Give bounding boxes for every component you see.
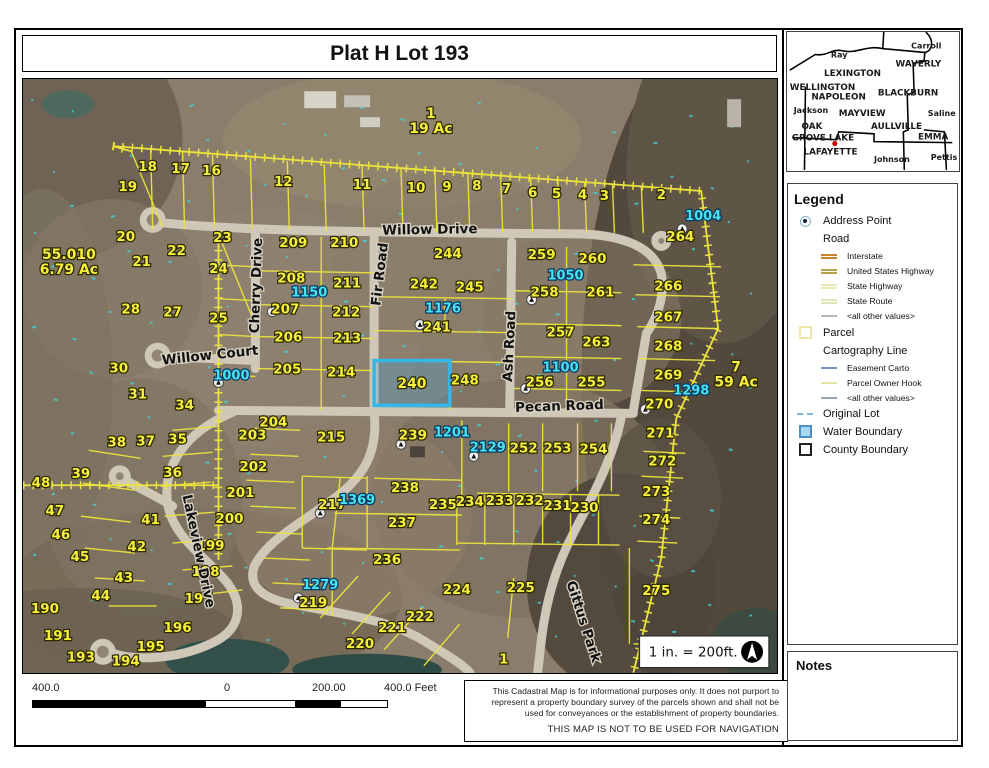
map-scale-text: 1 in. = 200ft.	[649, 646, 738, 661]
parcel-label-48: 48	[32, 476, 51, 491]
parcel-label-209: 209	[279, 236, 307, 251]
parcel-label-31: 31	[128, 387, 147, 402]
locator-place-label: LAFAYETTE	[804, 147, 858, 157]
map-annotation-speck	[283, 123, 285, 125]
parcel-label-22: 22	[167, 244, 186, 259]
legend-item: United States Highway	[794, 266, 951, 276]
map-annotation-speck	[247, 150, 250, 152]
parcel-label-257: 257	[547, 326, 575, 341]
legend-item-label: Cartography Line	[823, 345, 907, 357]
map-annotation-speck	[691, 570, 695, 572]
disclaimer-line: This Cadastral Map is for informational …	[473, 686, 779, 697]
parcel-label-213: 213	[333, 332, 361, 347]
legend-item-label: Water Boundary	[823, 426, 902, 438]
parcel-label-19: 19	[118, 180, 137, 195]
disclaimer-line: represent a property boundary survey of …	[473, 697, 779, 708]
locator-place-label: OAK	[802, 122, 824, 132]
parcel-label-225: 225	[507, 581, 535, 596]
parcel-label-206: 206	[274, 331, 302, 346]
building	[344, 95, 370, 107]
legend-title: Legend	[794, 191, 951, 207]
locator-place-label: NAPOLEON	[811, 93, 866, 103]
parcel-label-200: 200	[215, 512, 243, 527]
parcel-label-10: 10	[407, 181, 426, 196]
parcel-label-235: 235	[429, 498, 457, 513]
map-annotation-speck	[593, 192, 597, 194]
parcel-label-190: 190	[31, 602, 59, 617]
address-point-swatch	[800, 216, 811, 227]
parcel-label-267: 267	[654, 311, 682, 326]
scale-bar-segment	[206, 701, 295, 707]
legend-item-label: <all other values>	[847, 311, 915, 321]
legend-item-label: State Highway	[847, 281, 902, 291]
legend-item-label: Parcel Owner Hook	[847, 378, 922, 388]
map-annotation-speck	[52, 493, 55, 495]
parcel-label-255: 255	[577, 375, 605, 390]
map-annotation-speck	[71, 432, 74, 434]
map-annotation-speck	[477, 424, 481, 426]
map-annotation-speck	[168, 583, 172, 585]
parcel-label-268: 268	[654, 340, 682, 355]
parcel-label-248: 248	[451, 373, 479, 388]
scale-bar-labels: 400.00200.00400.0 Feet	[32, 682, 432, 697]
locator-place-label: WAVERLY	[896, 59, 942, 69]
parcel-label-196: 196	[164, 621, 192, 636]
plat-map-page: Plat H Lot 193 1817161211109876543219202…	[0, 0, 989, 768]
parcel-label-24: 24	[209, 262, 228, 277]
locator-place-label: EMMA	[918, 133, 949, 143]
parcel-label-203: 203	[238, 428, 266, 443]
road-label: Willow Drive	[382, 222, 478, 239]
parcel-label-253: 253	[544, 441, 572, 456]
parcel-label-4: 4	[578, 188, 587, 203]
map-annotation-speck	[708, 604, 711, 606]
title-bar: Plat H Lot 193	[22, 35, 777, 72]
plat-map[interactable]: 1817161211109876543219202321222428272530…	[23, 79, 777, 673]
parcel-label-252: 252	[510, 441, 538, 456]
acreage-label: 19 Ac	[409, 121, 452, 137]
scale-bar-graphic	[32, 700, 388, 708]
scale-bar-label: 400.0 Feet	[384, 682, 437, 694]
building	[410, 446, 425, 457]
parcel-label-43: 43	[114, 571, 133, 586]
building	[727, 99, 741, 127]
parcel-label-35: 35	[168, 432, 187, 447]
address-label-1201: 1201	[434, 425, 470, 440]
bottom-row: 400.00200.00400.0 Feet This Cadastral Ma…	[22, 680, 777, 744]
map-annotation-speck	[266, 639, 269, 641]
parcel-label-28: 28	[121, 303, 140, 318]
cul-de-sac-island	[116, 472, 124, 480]
original-lot-swatch	[797, 413, 813, 415]
parcel-label-41: 41	[141, 513, 160, 528]
disclaimer-box: This Cadastral Map is for informational …	[464, 680, 788, 742]
scale-bar-label: 200.00	[312, 682, 346, 694]
locator-place-label: WELLINGTON	[790, 83, 855, 93]
map-annotation-speck	[690, 343, 692, 345]
state-route-swatch	[821, 299, 837, 304]
parcel-label-270: 270	[645, 397, 673, 412]
map-annotation-speck	[361, 334, 364, 336]
legend-item: State Route	[794, 296, 951, 306]
parcel-label-224: 224	[443, 583, 471, 598]
parcel-label-259: 259	[528, 248, 556, 263]
scale-bar-label: 400.0	[32, 682, 60, 694]
parcel-label-208: 208	[277, 272, 305, 287]
parcel-label-231: 231	[544, 499, 572, 514]
locator-place-label: Johnson	[873, 155, 910, 164]
map-annotation-speck	[497, 591, 500, 593]
disclaimer-line: used for conveyances or the establishmen…	[473, 708, 779, 719]
cul-de-sac-island	[658, 238, 664, 244]
map-annotation-speck	[362, 562, 364, 564]
legend-item-label: Easement Carto	[847, 363, 909, 373]
acreage-label: 55.010	[42, 247, 96, 263]
page-title: Plat H Lot 193	[330, 42, 469, 66]
parcel-label-219: 219	[299, 596, 327, 611]
building	[360, 117, 380, 127]
map-annotation-speck	[72, 110, 74, 112]
parcel-label-36: 36	[163, 466, 182, 481]
parcel-label-191: 191	[44, 629, 72, 644]
parcel-label-202: 202	[239, 460, 267, 475]
locator-map: RayCarrollWAVERLYLEXINGTONWELLINGTONNAPO…	[786, 31, 960, 172]
parcel-label-214: 214	[327, 365, 355, 380]
parcel-label-242: 242	[410, 278, 438, 293]
locator-place-label: LEXINGTON	[824, 69, 881, 79]
acreage-label: 1	[426, 106, 436, 122]
map-annotation-speck	[131, 382, 134, 384]
parcel-swatch	[799, 326, 812, 339]
legend-item: Cartography Line	[794, 345, 951, 357]
parcel-label-272: 272	[648, 454, 676, 469]
interstate-swatch	[821, 254, 837, 259]
map-annotation-speck	[245, 245, 247, 247]
address-label-1298: 1298	[673, 383, 709, 398]
state-highway-swatch	[821, 284, 837, 289]
parcel-label-21: 21	[132, 255, 151, 270]
parcel-label-238: 238	[391, 481, 419, 496]
map-annotation-speck	[441, 451, 443, 453]
parcel-label-233: 233	[486, 494, 514, 509]
parcel-label-211: 211	[333, 277, 361, 292]
address-label-1176: 1176	[425, 302, 461, 317]
scale-bar-segment	[295, 701, 341, 707]
parcel-label-244: 244	[434, 247, 462, 262]
parcel-label-3: 3	[600, 189, 609, 204]
parcel-label-258: 258	[531, 286, 559, 301]
parcel-label-230: 230	[570, 501, 598, 516]
legend-item: <all other values>	[794, 311, 951, 321]
map-annotation-speck	[343, 623, 345, 625]
cul-de-sac-island	[97, 646, 109, 658]
parcel-label-273: 273	[642, 485, 670, 500]
legend-panel: Legend Address PointRoadInterstateUnited…	[787, 183, 958, 645]
scale-bar-segment	[33, 701, 206, 707]
parcel-label-241: 241	[423, 321, 451, 336]
legend-item: Parcel	[794, 326, 951, 339]
parcel-label-12: 12	[274, 175, 293, 190]
address-label-1000: 1000	[213, 368, 249, 383]
map-annotation-speck	[460, 390, 462, 392]
legend-item: Road	[794, 233, 951, 245]
legend-item: Parcel Owner Hook	[794, 378, 951, 388]
parcel-label-221: 221	[378, 621, 406, 636]
parcel-label-215: 215	[317, 430, 345, 445]
legend-item: Easement Carto	[794, 363, 951, 373]
parcel-label-194: 194	[112, 655, 140, 670]
legend-item-label: Interstate	[847, 251, 883, 261]
legend-item-label: Parcel	[823, 327, 854, 339]
parcel-label-275: 275	[642, 584, 670, 599]
parcel-label-5: 5	[552, 187, 561, 202]
parcel-label-193: 193	[67, 651, 95, 666]
parcel-label-7: 7	[502, 182, 511, 197]
map-annotation-speck	[497, 269, 499, 271]
parcel-label-17: 17	[171, 162, 190, 177]
parcel-label-205: 205	[273, 363, 301, 378]
map-annotation-speck	[34, 232, 36, 234]
map-annotation-speck	[324, 134, 326, 136]
map-annotation-speck	[399, 213, 402, 215]
address-label-1004: 1004	[685, 209, 721, 224]
locator-place-label: AULLVILLE	[871, 122, 922, 132]
disclaimer-text: This Cadastral Map is for informational …	[473, 686, 779, 719]
legend-item-label: <all other values>	[847, 393, 915, 403]
map-area: 1817161211109876543219202321222428272530…	[22, 78, 778, 674]
parcel-label-266: 266	[654, 280, 682, 295]
parcel-label-30: 30	[109, 362, 128, 377]
map-annotation-speck	[381, 501, 383, 503]
parcel-label-6: 6	[528, 186, 537, 201]
parcel-label-210: 210	[330, 236, 358, 251]
map-annotation-speck	[574, 575, 576, 577]
locator-place-label: Pettis	[931, 153, 958, 162]
parcel-label-8: 8	[472, 179, 481, 194]
parcel-label-38: 38	[107, 435, 126, 450]
parcel-label-263: 263	[582, 336, 610, 351]
parcel-label-11: 11	[353, 178, 372, 193]
map-annotation-speck	[150, 549, 152, 551]
locator-place-label: Carroll	[911, 42, 941, 51]
county-locator-map: RayCarrollWAVERLYLEXINGTONWELLINGTONNAPO…	[787, 32, 959, 171]
parcel-label-9: 9	[442, 180, 451, 195]
parcel-label-236: 236	[373, 553, 401, 568]
parcel-label-20: 20	[116, 230, 135, 245]
map-annotation-speck	[557, 541, 560, 543]
acreage-label: 59 Ac	[714, 374, 757, 390]
parcel-label-34: 34	[175, 398, 194, 413]
parcel-label-23: 23	[213, 231, 232, 246]
locator-place-label: Jackson	[793, 106, 829, 115]
map-annotation-speck	[750, 292, 752, 294]
address-label-1050: 1050	[548, 269, 584, 284]
locator-place-label: MAYVIEW	[839, 109, 886, 119]
parcel-label-245: 245	[456, 281, 484, 296]
parcel-label-25: 25	[209, 312, 228, 327]
parcel-label-234: 234	[456, 495, 484, 510]
road-label: Pecan Road	[515, 398, 604, 416]
legend-item-label: County Boundary	[823, 444, 908, 456]
map-annotation-speck	[150, 322, 153, 324]
parcel-label-1: 1	[499, 653, 508, 668]
map-annotation-speck	[302, 612, 304, 614]
parcel-label-47: 47	[46, 504, 65, 519]
united-states-highway-swatch	[821, 269, 837, 274]
parcel-label-46: 46	[52, 528, 71, 543]
acreage-label: 7	[731, 360, 741, 376]
legend-item-label: Address Point	[823, 215, 891, 227]
parcel-owner-hook-swatch	[821, 382, 837, 384]
water-boundary-swatch	[799, 425, 812, 438]
address-label-1100: 1100	[543, 361, 579, 376]
map-annotation-speck	[731, 353, 733, 355]
all-other-values-swatch	[821, 397, 837, 399]
legend-item: County Boundary	[794, 443, 951, 456]
map-annotation-speck	[70, 205, 74, 207]
address-label-2129: 2129	[470, 440, 506, 455]
map-annotation-speck	[148, 416, 150, 418]
map-annotation-speck	[33, 554, 36, 556]
locator-place-label: Ray	[831, 50, 848, 59]
parcel-label-18: 18	[138, 160, 157, 175]
map-annotation-speck	[689, 115, 692, 117]
parcel-label-271: 271	[646, 426, 674, 441]
parcel-label-256: 256	[526, 375, 554, 390]
map-annotation-speck	[321, 551, 323, 553]
legend-item: Address Point	[794, 215, 951, 227]
parcel-label-220: 220	[346, 637, 374, 652]
parcel-label-232: 232	[516, 494, 544, 509]
notes-panel: Notes	[787, 651, 958, 741]
parcel-label-264: 264	[666, 230, 694, 245]
scale-bar-segment	[341, 701, 387, 707]
parcel-label-237: 237	[388, 516, 416, 531]
parcel-label-2: 2	[657, 188, 666, 203]
parcel-label-195: 195	[137, 640, 165, 655]
map-annotation-speck	[363, 240, 367, 242]
locator-place-label: GROVE LAKE	[792, 134, 854, 144]
parcel-label-42: 42	[127, 540, 146, 555]
locator-place-label: Saline	[928, 109, 956, 118]
parcel-label-261: 261	[586, 286, 614, 301]
county-boundary-line	[903, 32, 931, 170]
building	[304, 91, 336, 108]
parcel-label-45: 45	[70, 550, 89, 565]
parcel-label-254: 254	[579, 442, 607, 457]
parcel-label-37: 37	[136, 434, 155, 449]
legend-item-label: United States Highway	[847, 266, 934, 276]
parcel-label-240: 240	[397, 376, 426, 392]
legend-item: Original Lot	[794, 408, 951, 420]
parcel-label-212: 212	[332, 306, 360, 321]
map-annotation-speck	[344, 301, 348, 303]
map-annotation-speck	[478, 102, 481, 104]
legend-items: Address PointRoadInterstateUnited States…	[794, 215, 951, 456]
water-body	[42, 90, 94, 118]
notes-title: Notes	[796, 658, 949, 673]
easement-carto-swatch	[821, 367, 837, 369]
parcel-label-274: 274	[642, 513, 670, 528]
parcel-label-16: 16	[202, 164, 221, 179]
map-annotation-speck	[672, 631, 676, 633]
parcel-label-207: 207	[271, 303, 299, 318]
parcel-label-27: 27	[163, 306, 182, 321]
parcel-label-201: 201	[226, 486, 254, 501]
address-label-1150: 1150	[291, 286, 327, 301]
navigation-warning: THIS MAP IS NOT TO BE USED FOR NAVIGATIO…	[473, 724, 779, 735]
scale-bar-label: 0	[224, 682, 230, 694]
terrain-patch	[232, 418, 471, 617]
parcel-label-269: 269	[654, 368, 682, 383]
map-annotation-speck	[653, 142, 657, 144]
column-divider	[782, 30, 784, 745]
address-label-1369: 1369	[339, 493, 375, 508]
page-frame: Plat H Lot 193 1817161211109876543219202…	[14, 28, 963, 747]
parcel-label-39: 39	[71, 467, 90, 482]
location-marker-dot	[832, 141, 837, 146]
address-label-1279: 1279	[302, 578, 338, 593]
parcel-label-44: 44	[91, 589, 110, 604]
map-annotation-speck	[264, 184, 266, 186]
parcel-label-222: 222	[406, 610, 434, 625]
acreage-label: 6.79 Ac	[40, 262, 98, 278]
map-annotation-speck	[168, 261, 171, 263]
scale-bar: 400.00200.00400.0 Feet	[32, 682, 432, 722]
legend-item: State Highway	[794, 281, 951, 291]
map-annotation-speck	[496, 364, 500, 366]
legend-item-label: State Route	[847, 296, 892, 306]
map-annotation-speck	[418, 152, 421, 154]
county-boundary-swatch	[799, 443, 812, 456]
legend-item-label: Original Lot	[823, 408, 879, 420]
map-annotation-speck	[90, 372, 93, 374]
all-other-values-swatch	[821, 315, 837, 317]
legend-item: Water Boundary	[794, 425, 951, 438]
map-annotation-speck	[538, 602, 541, 604]
parcel-label-260: 260	[578, 252, 606, 267]
locator-place-label: BLACKBURN	[878, 89, 938, 99]
legend-item: <all other values>	[794, 393, 951, 403]
legend-item-label: Road	[823, 233, 849, 245]
parcel-label-239: 239	[399, 428, 427, 443]
legend-item: Interstate	[794, 251, 951, 261]
map-annotation-speck	[728, 221, 730, 223]
map-annotation-speck	[53, 171, 55, 173]
map-annotation-speck	[459, 163, 462, 165]
